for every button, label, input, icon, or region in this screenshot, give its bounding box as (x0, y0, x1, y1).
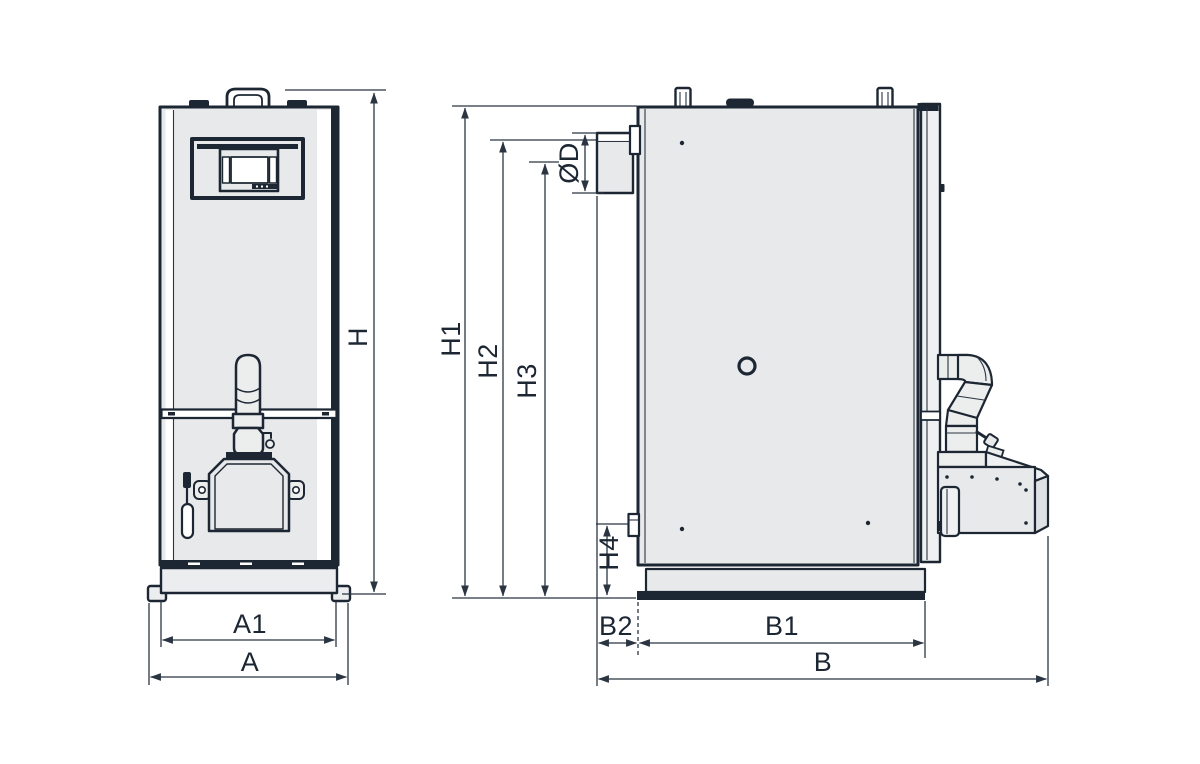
burner-funnel (234, 428, 263, 454)
side-base-bar (637, 591, 925, 600)
return-connection (629, 514, 640, 536)
dim-label-b1: B1 (765, 611, 799, 641)
dim-label-h: H (343, 327, 373, 347)
pedestal (161, 568, 337, 593)
side-body (638, 107, 918, 565)
dim-label-h3: H3 (512, 363, 542, 399)
dim-label-od: ØD (554, 142, 584, 184)
flue-outlet (597, 126, 640, 193)
dim-label-b: B (814, 647, 833, 677)
front-view (148, 89, 350, 601)
control-panel (192, 139, 303, 198)
panel-keys (252, 184, 278, 189)
dim-label-h2: H2 (473, 343, 503, 379)
inspection-hole (739, 358, 755, 374)
panel-button-right (270, 157, 277, 183)
dim-label-a1: A1 (233, 609, 267, 639)
side-base (646, 569, 925, 592)
boiler-dimension-diagram: H A1 A (0, 0, 1200, 764)
dim-label-h4: H4 (594, 535, 624, 571)
door-latch (939, 184, 945, 192)
burner-assembly-side (937, 446, 1048, 536)
dim-label-b2: B2 (599, 611, 633, 641)
funnel-hook (266, 440, 274, 448)
top-connection-rear (676, 88, 691, 107)
dim-label-h1: H1 (436, 321, 466, 357)
pellet-hose (938, 355, 999, 452)
dim-label-a: A (241, 647, 260, 677)
top-connection-front (878, 88, 893, 107)
display-screen (231, 157, 268, 183)
burner-bracket (941, 487, 959, 536)
side-view (597, 88, 1048, 600)
panel-button-left (223, 157, 230, 183)
